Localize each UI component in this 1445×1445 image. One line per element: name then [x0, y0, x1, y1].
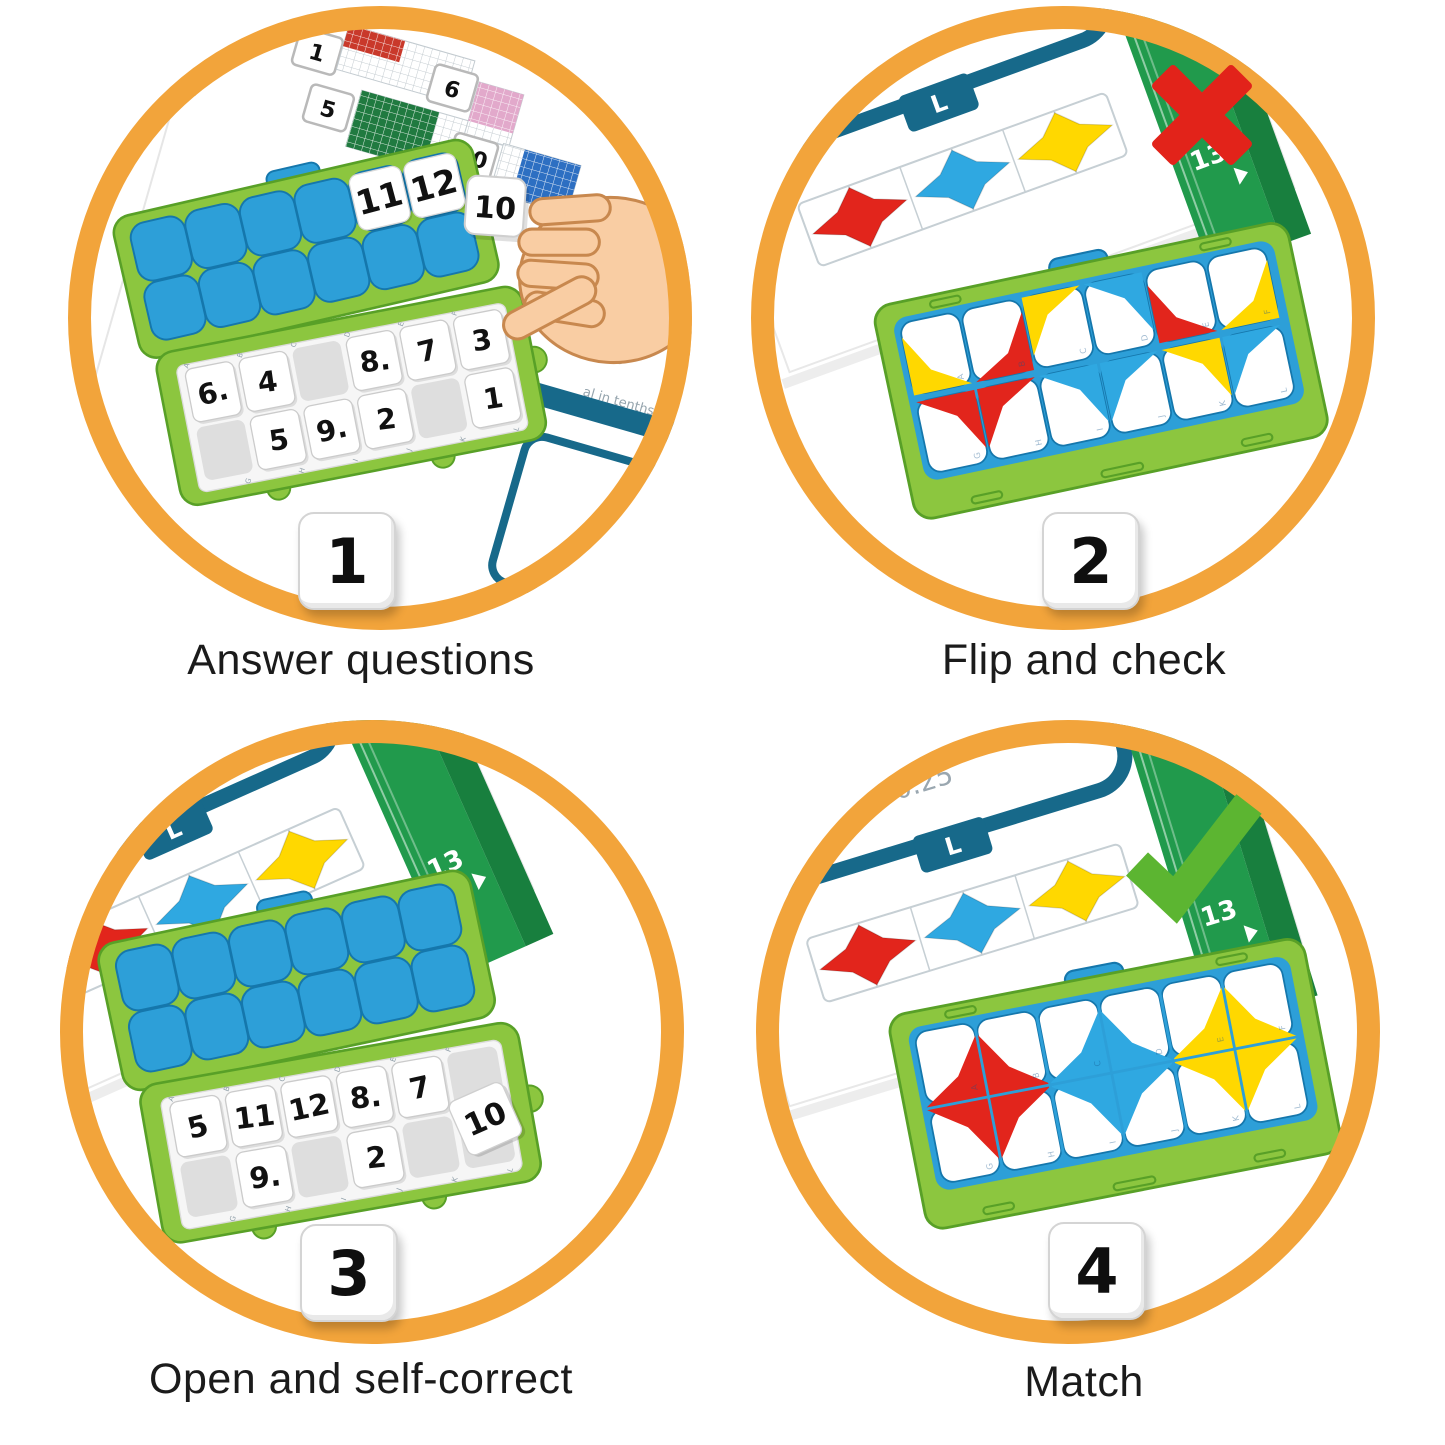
step4-number-tile: 4 [1048, 1222, 1146, 1320]
tray-tile-number: 9. [247, 1158, 282, 1196]
tray-tile-number: 8. [348, 1079, 383, 1116]
step2-number: 2 [1069, 525, 1112, 598]
lid-blue-tile [113, 942, 182, 1014]
lid-blue-tile [352, 955, 421, 1027]
step3-number: 3 [327, 1237, 370, 1310]
step2-number-tile: 2 [1042, 512, 1140, 610]
lid-blue-tile [283, 906, 352, 978]
check-mark-icon [1115, 776, 1265, 926]
hand-finger [519, 229, 600, 255]
lid-blue-tile [126, 1003, 195, 1075]
step3-number-tile: 3 [300, 1224, 398, 1322]
step-panel-2: L100= 0.2513ABCDEFGHIJKL 2 Flip and chec… [723, 0, 1445, 722]
tray-empty-slot [179, 1154, 238, 1218]
step1-number: 1 [325, 525, 368, 598]
tray-tile-number: 2 [375, 402, 399, 437]
lid-blue-tile [296, 967, 365, 1039]
lid-blue-tile [226, 918, 295, 990]
step-panel-3: L135A11B12C8.D7EFG9.HI2JKL10 3 Open and … [0, 720, 722, 1442]
step4-caption: Match [723, 1358, 1445, 1407]
tray-empty-slot [291, 340, 349, 402]
lid-blue-tile [239, 979, 308, 1051]
tray-tile-number: 8. [358, 343, 392, 379]
step1-caption: Answer questions [0, 636, 722, 685]
tray-empty-slot [410, 377, 468, 439]
lid-blue-tile [183, 991, 252, 1063]
step-panel-4: L100= 0.2513ABCDEFGHIJKL 4 Match [723, 720, 1445, 1442]
tray-empty-slot [401, 1115, 460, 1179]
lid-blue-tile [409, 943, 478, 1015]
step4-number: 4 [1075, 1235, 1118, 1308]
step-panel-1: 15610100= 0.250.75100al in tenthsI11126.… [0, 0, 722, 722]
step2-caption: Flip and check [723, 636, 1445, 685]
hand-finger [529, 194, 611, 226]
step1-number-tile: 1 [298, 512, 396, 610]
tray-empty-slot [290, 1135, 349, 1199]
lid-blue-tile [396, 882, 465, 954]
how-to-play-infographic: { "steps": [ {"number": "1", "caption": … [0, 0, 1445, 1445]
step3-caption: Open and self-correct [0, 1355, 722, 1404]
held-tile-number: 10 [473, 190, 517, 228]
cross-mark-icon [1137, 50, 1267, 180]
check-stroke [1137, 804, 1249, 900]
lid-blue-tile [339, 894, 408, 966]
tray-tile-number: 11 [232, 1098, 277, 1137]
tray-empty-slot [195, 419, 253, 481]
tray-tile-number: 2 [364, 1139, 388, 1175]
lid-blue-tile [170, 930, 239, 1002]
